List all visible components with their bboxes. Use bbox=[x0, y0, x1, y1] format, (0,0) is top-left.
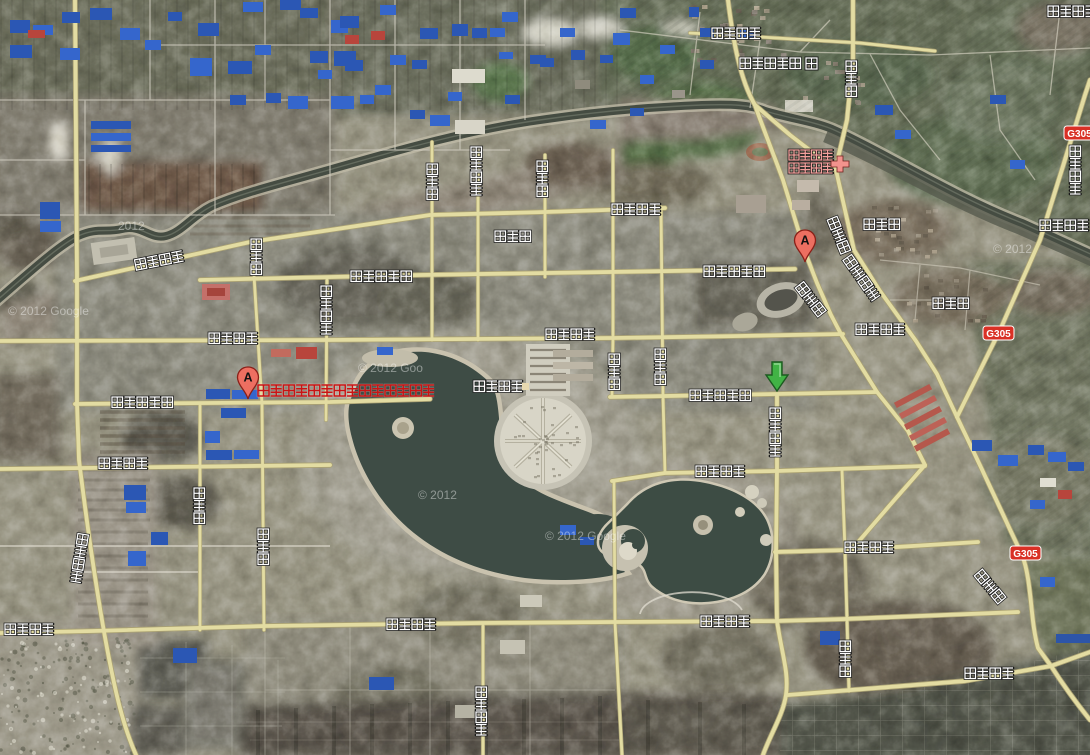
svg-text:© 2012 Google: © 2012 Google bbox=[545, 529, 626, 543]
svg-text:G305: G305 bbox=[986, 329, 1011, 340]
svg-text:A: A bbox=[243, 371, 252, 385]
svg-text:© 2012 Google: © 2012 Google bbox=[8, 304, 89, 318]
svg-text:G305: G305 bbox=[1067, 129, 1090, 140]
svg-text:2012: 2012 bbox=[118, 219, 145, 233]
svg-text:© 2012 Goo: © 2012 Goo bbox=[358, 361, 423, 375]
svg-text:© 2012: © 2012 bbox=[418, 488, 457, 502]
svg-text:A: A bbox=[800, 234, 809, 248]
svg-text:G305: G305 bbox=[1013, 549, 1038, 560]
svg-text:© 2012: © 2012 bbox=[993, 242, 1032, 256]
